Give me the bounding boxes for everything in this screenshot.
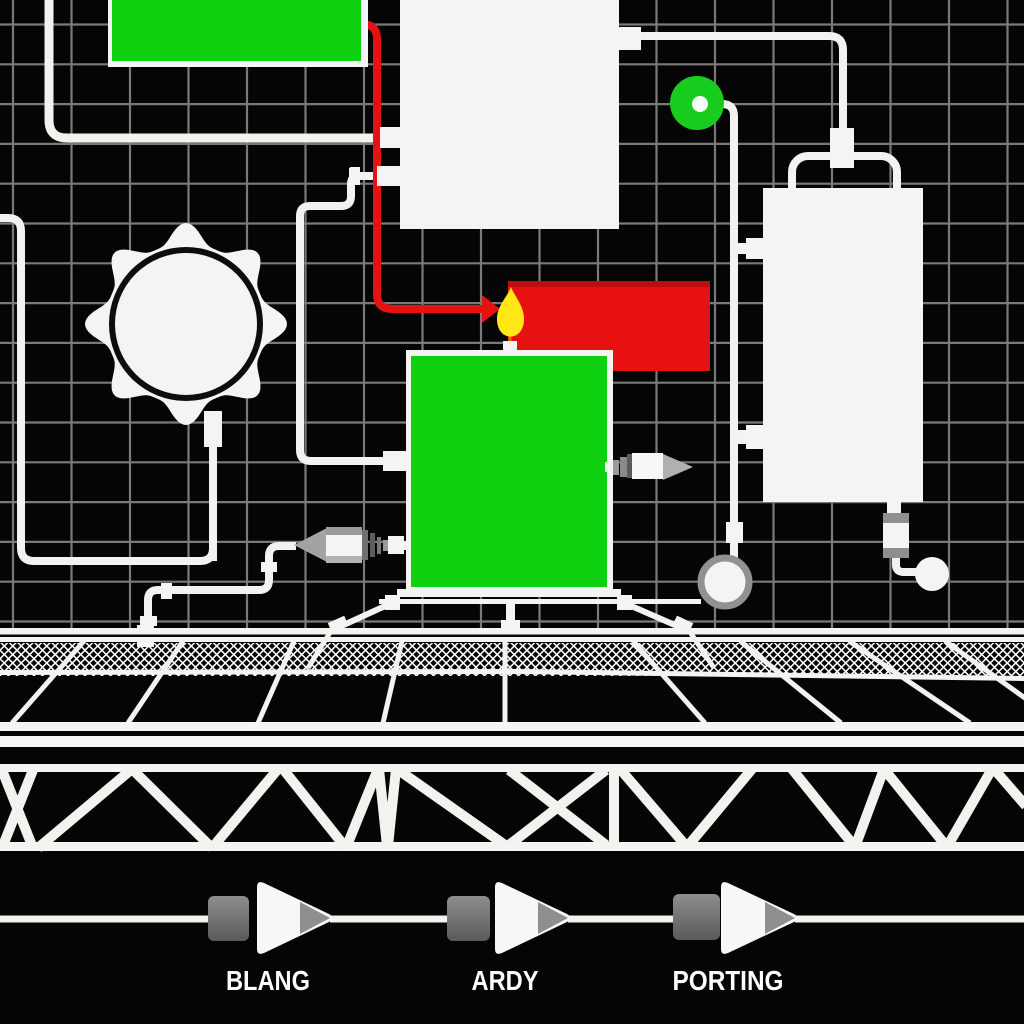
svg-text:ARDY: ARDY <box>472 965 539 996</box>
svg-text:PORTING: PORTING <box>673 965 784 996</box>
svg-text:BLANG: BLANG <box>226 965 310 996</box>
